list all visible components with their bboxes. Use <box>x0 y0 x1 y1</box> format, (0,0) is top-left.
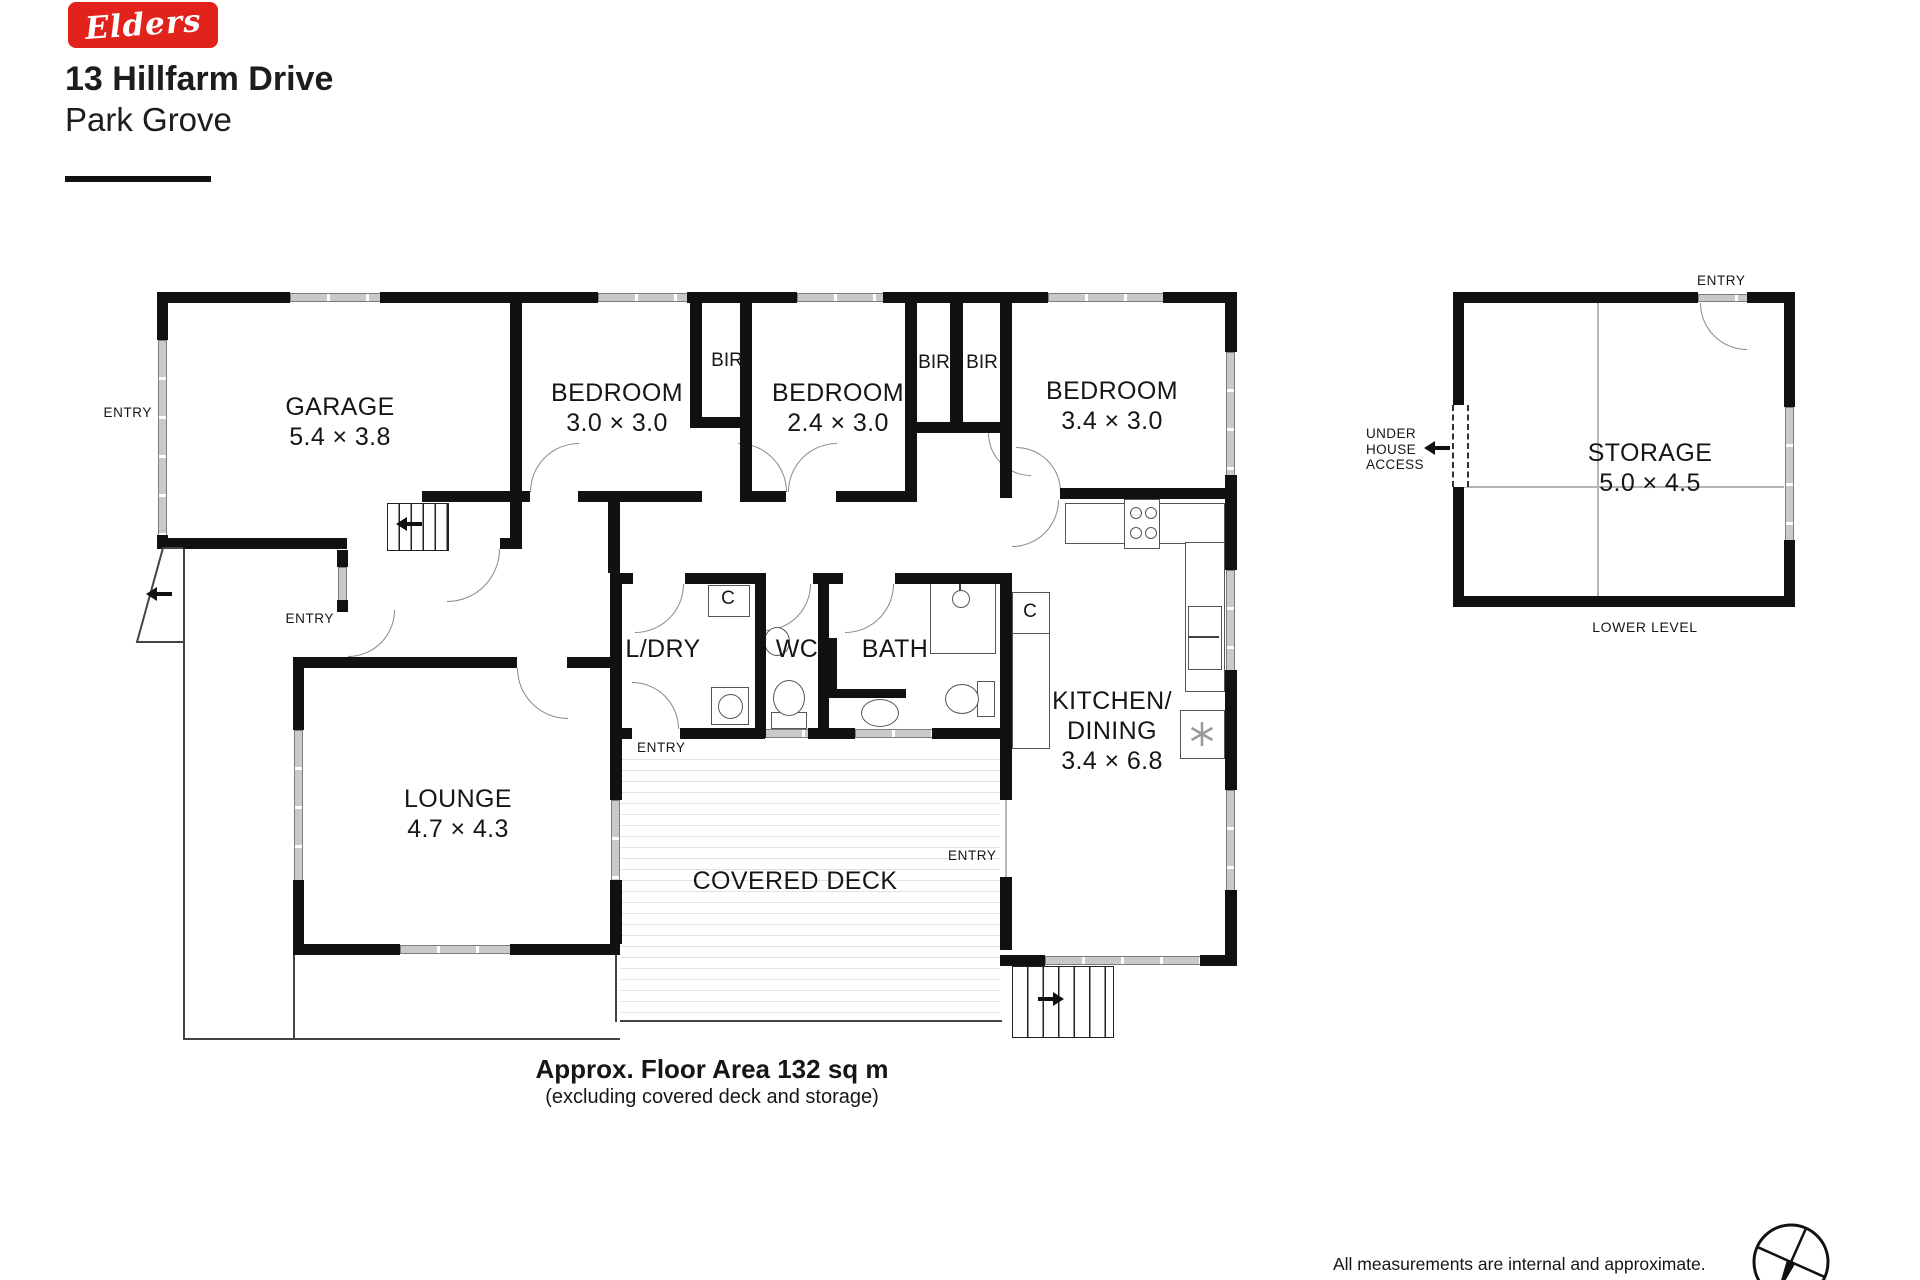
wall <box>687 292 797 303</box>
bedroom3-name: BEDROOM <box>1002 376 1222 406</box>
door-arc-icon <box>1012 500 1059 547</box>
wall <box>293 880 304 954</box>
wall <box>1453 292 1698 303</box>
fixture <box>1130 527 1142 539</box>
under-house-access-line2: HOUSE <box>1366 442 1424 458</box>
lower-level-label: LOWER LEVEL <box>1556 619 1734 635</box>
wall <box>608 502 620 573</box>
wall <box>510 944 620 955</box>
garage-name: GARAGE <box>230 392 450 422</box>
wall <box>1784 292 1795 407</box>
wall <box>1225 475 1237 570</box>
door-arc-icon <box>447 549 500 602</box>
fixture <box>977 681 995 717</box>
storage-name: STORAGE <box>1510 438 1790 468</box>
room-label-wc: WC <box>757 634 837 664</box>
wall <box>610 880 622 944</box>
floorplan-page: Elders 13 Hillfarm Drive Park Grove <box>0 0 1920 1280</box>
wall <box>1453 292 1464 405</box>
wall <box>680 728 765 739</box>
line <box>1005 800 1007 877</box>
window <box>1048 293 1165 302</box>
window <box>1226 352 1235 477</box>
compass-icon <box>1745 1220 1837 1280</box>
door-arc-icon <box>348 610 395 657</box>
line <box>620 1020 1002 1022</box>
wall <box>578 491 702 502</box>
elders-logo-text: Elders <box>84 3 203 47</box>
fixture <box>1130 507 1142 519</box>
room-label-bedroom2: BEDROOM 2.4 × 3.0 <box>728 378 948 438</box>
entry-label-deck-right: ENTRY <box>948 848 997 863</box>
wall <box>157 292 168 340</box>
wall <box>932 728 1012 739</box>
door-arc-icon <box>845 584 894 633</box>
room-label-bedroom1: BEDROOM 3.0 × 3.0 <box>507 378 727 438</box>
disclaimer-line1: All measurements are internal and approx… <box>1333 1254 1706 1275</box>
wall <box>422 491 530 502</box>
room-label-storage: STORAGE 5.0 × 4.5 <box>1510 438 1790 498</box>
bedroom2-dims: 2.4 × 3.0 <box>728 408 948 438</box>
room-label-covered-deck: COVERED DECK <box>645 866 945 896</box>
wall <box>337 550 348 567</box>
window <box>1226 570 1235 672</box>
window <box>290 293 382 302</box>
fixture <box>945 684 979 714</box>
door-arc-icon <box>1016 447 1061 492</box>
kitchen-name-line1: KITCHEN/ <box>1002 686 1222 716</box>
under-house-access-line3: ACCESS <box>1366 457 1424 473</box>
bedroom1-dims: 3.0 × 3.0 <box>507 408 727 438</box>
room-label-bedroom3: BEDROOM 3.4 × 3.0 <box>1002 376 1222 436</box>
wall <box>685 573 762 584</box>
wall <box>895 573 1000 584</box>
lounge-name: LOUNGE <box>348 784 568 814</box>
window <box>1226 790 1235 892</box>
line <box>293 955 295 1038</box>
wall <box>293 944 400 955</box>
deck-steps-arrow-icon <box>1038 992 1064 1006</box>
lounge-dims: 4.7 × 4.3 <box>348 814 568 844</box>
window <box>1045 956 1202 965</box>
under-house-access-opening <box>1452 405 1469 487</box>
fixture <box>1145 507 1157 519</box>
line <box>1189 636 1219 638</box>
door-arc-icon <box>635 584 684 633</box>
room-label-kitchen: KITCHEN/ DINING 3.4 × 6.8 <box>1002 686 1222 776</box>
stairs-arrow-icon <box>396 517 422 531</box>
wall <box>1000 955 1045 966</box>
door-arc-icon <box>764 584 811 631</box>
room-label-bath: BATH <box>835 634 955 664</box>
elders-logo: Elders <box>68 2 218 48</box>
entry-label-deck-left: ENTRY <box>637 740 686 755</box>
door-arc-icon <box>788 443 837 492</box>
wall <box>1000 877 1012 950</box>
address-line2: Park Grove <box>65 100 333 140</box>
entry-label-garage: ENTRY <box>62 405 152 420</box>
closet-label-laundry: C <box>708 588 748 610</box>
wall <box>500 538 510 549</box>
address-underline <box>65 176 211 182</box>
wall <box>1453 596 1795 607</box>
fixture <box>1188 606 1222 670</box>
bir-label-2: BIR <box>909 352 959 374</box>
under-house-access-line1: UNDER <box>1366 426 1424 442</box>
wall <box>293 657 304 730</box>
wall <box>836 689 906 698</box>
door-arc-icon <box>1700 303 1747 350</box>
wall <box>1453 487 1464 607</box>
covered-deck-name: COVERED DECK <box>645 866 945 896</box>
wall <box>752 491 786 502</box>
kitchen-name-line2: DINING <box>1002 716 1222 746</box>
window <box>338 567 347 602</box>
bedroom3-dims: 3.4 × 3.0 <box>1002 406 1222 436</box>
laundry-name: L/DRY <box>603 634 723 664</box>
wall <box>1200 955 1237 966</box>
window <box>611 800 620 882</box>
window <box>294 730 303 882</box>
bedroom1-name: BEDROOM <box>507 378 727 408</box>
wall <box>380 292 598 303</box>
fixture <box>861 699 899 727</box>
door-arc-icon <box>517 668 568 719</box>
wall <box>1225 670 1237 790</box>
floor-area-text: Approx. Floor Area 132 sq m <box>462 1054 962 1085</box>
entry-label-front: ENTRY <box>252 611 334 626</box>
wall <box>610 738 622 800</box>
wall <box>1225 292 1237 352</box>
fixture <box>1145 527 1157 539</box>
room-label-laundry: L/DRY <box>603 634 723 664</box>
fixture <box>773 680 805 716</box>
wall <box>293 657 517 668</box>
fixture <box>952 590 970 608</box>
bir-label-3: BIR <box>957 352 1007 374</box>
line <box>183 1038 620 1040</box>
property-address: 13 Hillfarm Drive Park Grove <box>65 58 333 140</box>
room-label-lounge: LOUNGE 4.7 × 4.3 <box>348 784 568 844</box>
window <box>1698 294 1749 302</box>
wall <box>1060 488 1237 499</box>
window <box>855 729 934 738</box>
driveway-arrow-icon <box>146 587 172 601</box>
kitchen-dims: 3.4 × 6.8 <box>1002 746 1222 776</box>
window <box>765 729 810 738</box>
window <box>797 293 885 302</box>
door-arc-icon <box>530 443 579 492</box>
window <box>400 945 512 954</box>
floor-area-note: (excluding covered deck and storage) <box>462 1086 962 1109</box>
bath-name: BATH <box>835 634 955 664</box>
room-label-garage: GARAGE 5.4 × 3.8 <box>230 392 450 452</box>
wall <box>883 292 1048 303</box>
wall <box>337 600 348 612</box>
door-arc-icon <box>632 682 679 729</box>
wall <box>808 728 855 739</box>
wall <box>157 292 290 303</box>
bir-label-1: BIR <box>702 350 752 372</box>
window <box>598 293 689 302</box>
closet-label-kitchen: C <box>1010 601 1050 623</box>
line <box>615 955 617 1022</box>
storage-dims: 5.0 × 4.5 <box>1510 468 1790 498</box>
bedroom2-name: BEDROOM <box>728 378 948 408</box>
window <box>158 340 167 542</box>
entry-label-storage: ENTRY <box>1697 273 1746 288</box>
wc-name: WC <box>757 634 837 664</box>
garage-dims: 5.4 × 3.8 <box>230 422 450 452</box>
fixture <box>718 694 743 719</box>
address-line1: 13 Hillfarm Drive <box>65 58 333 100</box>
under-house-access-label: UNDER HOUSE ACCESS <box>1366 426 1424 473</box>
fixture <box>1124 499 1160 549</box>
under-house-access-arrow-icon <box>1424 441 1450 455</box>
